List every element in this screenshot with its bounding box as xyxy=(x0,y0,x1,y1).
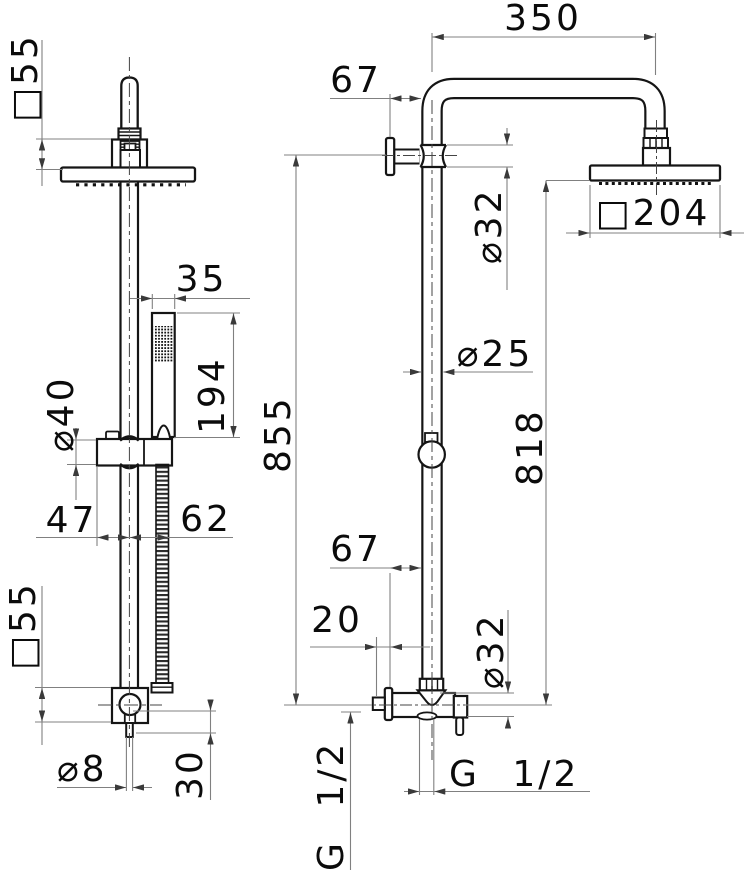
dim-g12-outlet: G 1/2 xyxy=(449,754,579,795)
dim-67-bottom: 67 xyxy=(330,529,382,570)
dim-62: 62 xyxy=(180,499,232,540)
shower-head-side xyxy=(590,166,720,181)
valve-handle xyxy=(456,718,463,736)
technical-drawing: □55 35 194 ⌀40 47 62 □55 ⌀8 30 350 67 ⌀3… xyxy=(0,0,746,874)
dim-350: 350 xyxy=(504,0,582,39)
dim-30: 30 xyxy=(170,748,211,800)
dim-47: 47 xyxy=(46,500,98,541)
dim-dia8: ⌀8 xyxy=(57,749,108,790)
dim-dia32-top: ⌀32 xyxy=(469,188,510,264)
dim-194: 194 xyxy=(192,356,233,434)
dim-g12-inlet: G 1/2 xyxy=(311,741,352,871)
dim-dia32-bottom: ⌀32 xyxy=(471,613,512,689)
dim-35: 35 xyxy=(176,259,228,300)
shower-hose xyxy=(156,465,169,684)
dim-square55-top: □55 xyxy=(5,33,46,122)
dim-67-top: 67 xyxy=(330,60,382,101)
shower-head-front xyxy=(61,168,195,182)
dim-20: 20 xyxy=(311,600,363,641)
dim-square55-bottom: □55 xyxy=(3,581,44,670)
valve-outlet-boss xyxy=(418,712,437,719)
dim-dia25: ⌀25 xyxy=(457,334,533,375)
dim-818: 818 xyxy=(510,408,551,486)
bottom-bracket-front xyxy=(112,688,148,737)
dim-dia40: ⌀40 xyxy=(41,376,82,452)
dim-855: 855 xyxy=(258,395,299,473)
hand-shower-spray-face xyxy=(154,326,173,362)
drawing-page: □55 35 194 ⌀40 47 62 □55 ⌀8 30 350 67 ⌀3… xyxy=(0,0,746,874)
hose-end-fitting xyxy=(152,683,173,693)
dim-square204: □204 xyxy=(596,193,711,234)
